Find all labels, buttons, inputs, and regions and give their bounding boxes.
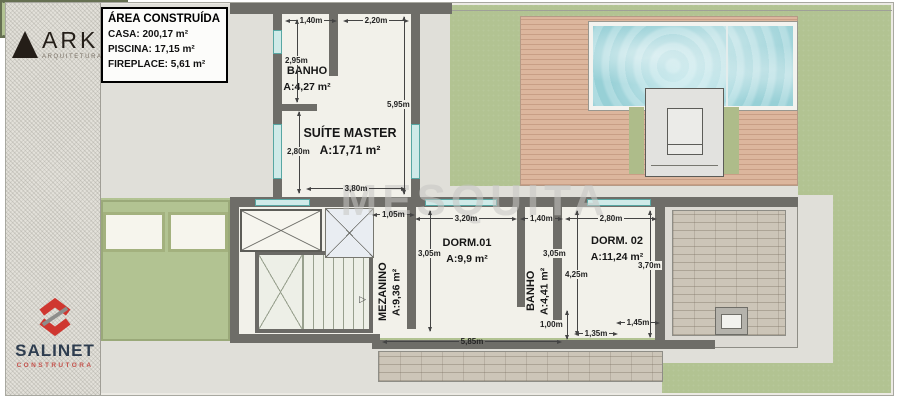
planter-strip (629, 107, 644, 174)
pool-divider-line (726, 26, 728, 106)
dimension-label: 1,45m (616, 318, 660, 327)
dimension-label: 3,20m (415, 214, 517, 223)
patio-pillar (715, 307, 748, 335)
window (273, 30, 282, 54)
dimension-label: 3,80m (306, 184, 406, 193)
dimension-line (567, 311, 568, 339)
salinet-logo: SALINET CONSTRUTORA (10, 295, 100, 369)
concrete-right-column (798, 195, 833, 363)
wall (230, 197, 239, 343)
dimension-label: 5,95m (386, 100, 411, 109)
fireplace-hearth (667, 108, 703, 155)
stair-direction-arrow-icon: ▷ (359, 295, 366, 304)
dimension-label: 2,80m (565, 214, 657, 223)
area-row-piscina: PISCINA: 17,15 m² (108, 42, 221, 57)
stair-winder-treads (259, 255, 303, 329)
window (255, 199, 310, 206)
dimension-label: 1,00m (539, 320, 564, 329)
dimension-label: 3,05m (417, 249, 442, 258)
staircase: ▷ (255, 251, 373, 333)
stair-treads (303, 255, 369, 329)
room-label-mezanino: MEZANINO A:9,36 m² (376, 246, 412, 338)
fireplace-hearth-line (668, 144, 702, 145)
brick-walkway (378, 351, 663, 382)
dimension-label: 1,35m (574, 329, 618, 338)
salinet-name: SALINET (15, 341, 95, 361)
area-row-casa: CASA: 200,17 m² (108, 27, 221, 42)
salinet-hexagon-icon (32, 295, 78, 339)
dimension-label: 4,25m (564, 270, 589, 279)
ark-tagline: ARQUITETURA (42, 54, 103, 60)
boundary-line (450, 10, 892, 11)
ark-logo: ARK ARQUITETURA (12, 12, 100, 76)
patio-pillar-core (721, 314, 742, 329)
room-label-suite-master: SUÍTE MASTER A:17,71 m² (294, 124, 406, 160)
ark-name: ARK (42, 29, 103, 52)
fireplace-base-line (651, 165, 718, 173)
window (411, 124, 420, 179)
dimension-label: 2,80m (286, 147, 311, 156)
wall (281, 104, 317, 111)
area-row-fireplace: FIREPLACE: 5,61 m² (108, 57, 221, 72)
dimension-label: 2,20m (343, 16, 409, 25)
wall (230, 334, 380, 343)
pergola-slab (168, 212, 228, 252)
area-summary-box: ÁREA CONSTRUÍDA CASA: 200,17 m² PISCINA:… (101, 7, 228, 83)
dimension-label: 1,40m (285, 16, 337, 25)
concrete-strip-east-of-suite (420, 13, 450, 197)
dimension-label: 1,40m (520, 214, 560, 223)
ark-triangle-icon (12, 31, 38, 58)
room-label-banho-suite: BANHO A:4,27 m² (278, 64, 336, 95)
dimension-label: 1,05m (372, 210, 414, 219)
dimension-line (430, 211, 431, 331)
area-summary-title: ÁREA CONSTRUÍDA (108, 13, 221, 25)
pergola-slab (103, 212, 165, 252)
dimension-label: 5,85m (382, 337, 562, 346)
dimension-label: 2,95m (284, 56, 309, 65)
window (273, 124, 282, 179)
floor-plan-canvas: ▷ MESQUITA BANHO A:4,27 m² SUÍTE MASTER … (0, 0, 900, 403)
planter-strip (724, 107, 739, 174)
dimension-label: 3,70m (637, 261, 662, 270)
salinet-tagline: CONSTRUTORA (17, 362, 94, 369)
dimension-label: 3,05m (542, 249, 567, 258)
fireplace-structure (645, 88, 724, 177)
